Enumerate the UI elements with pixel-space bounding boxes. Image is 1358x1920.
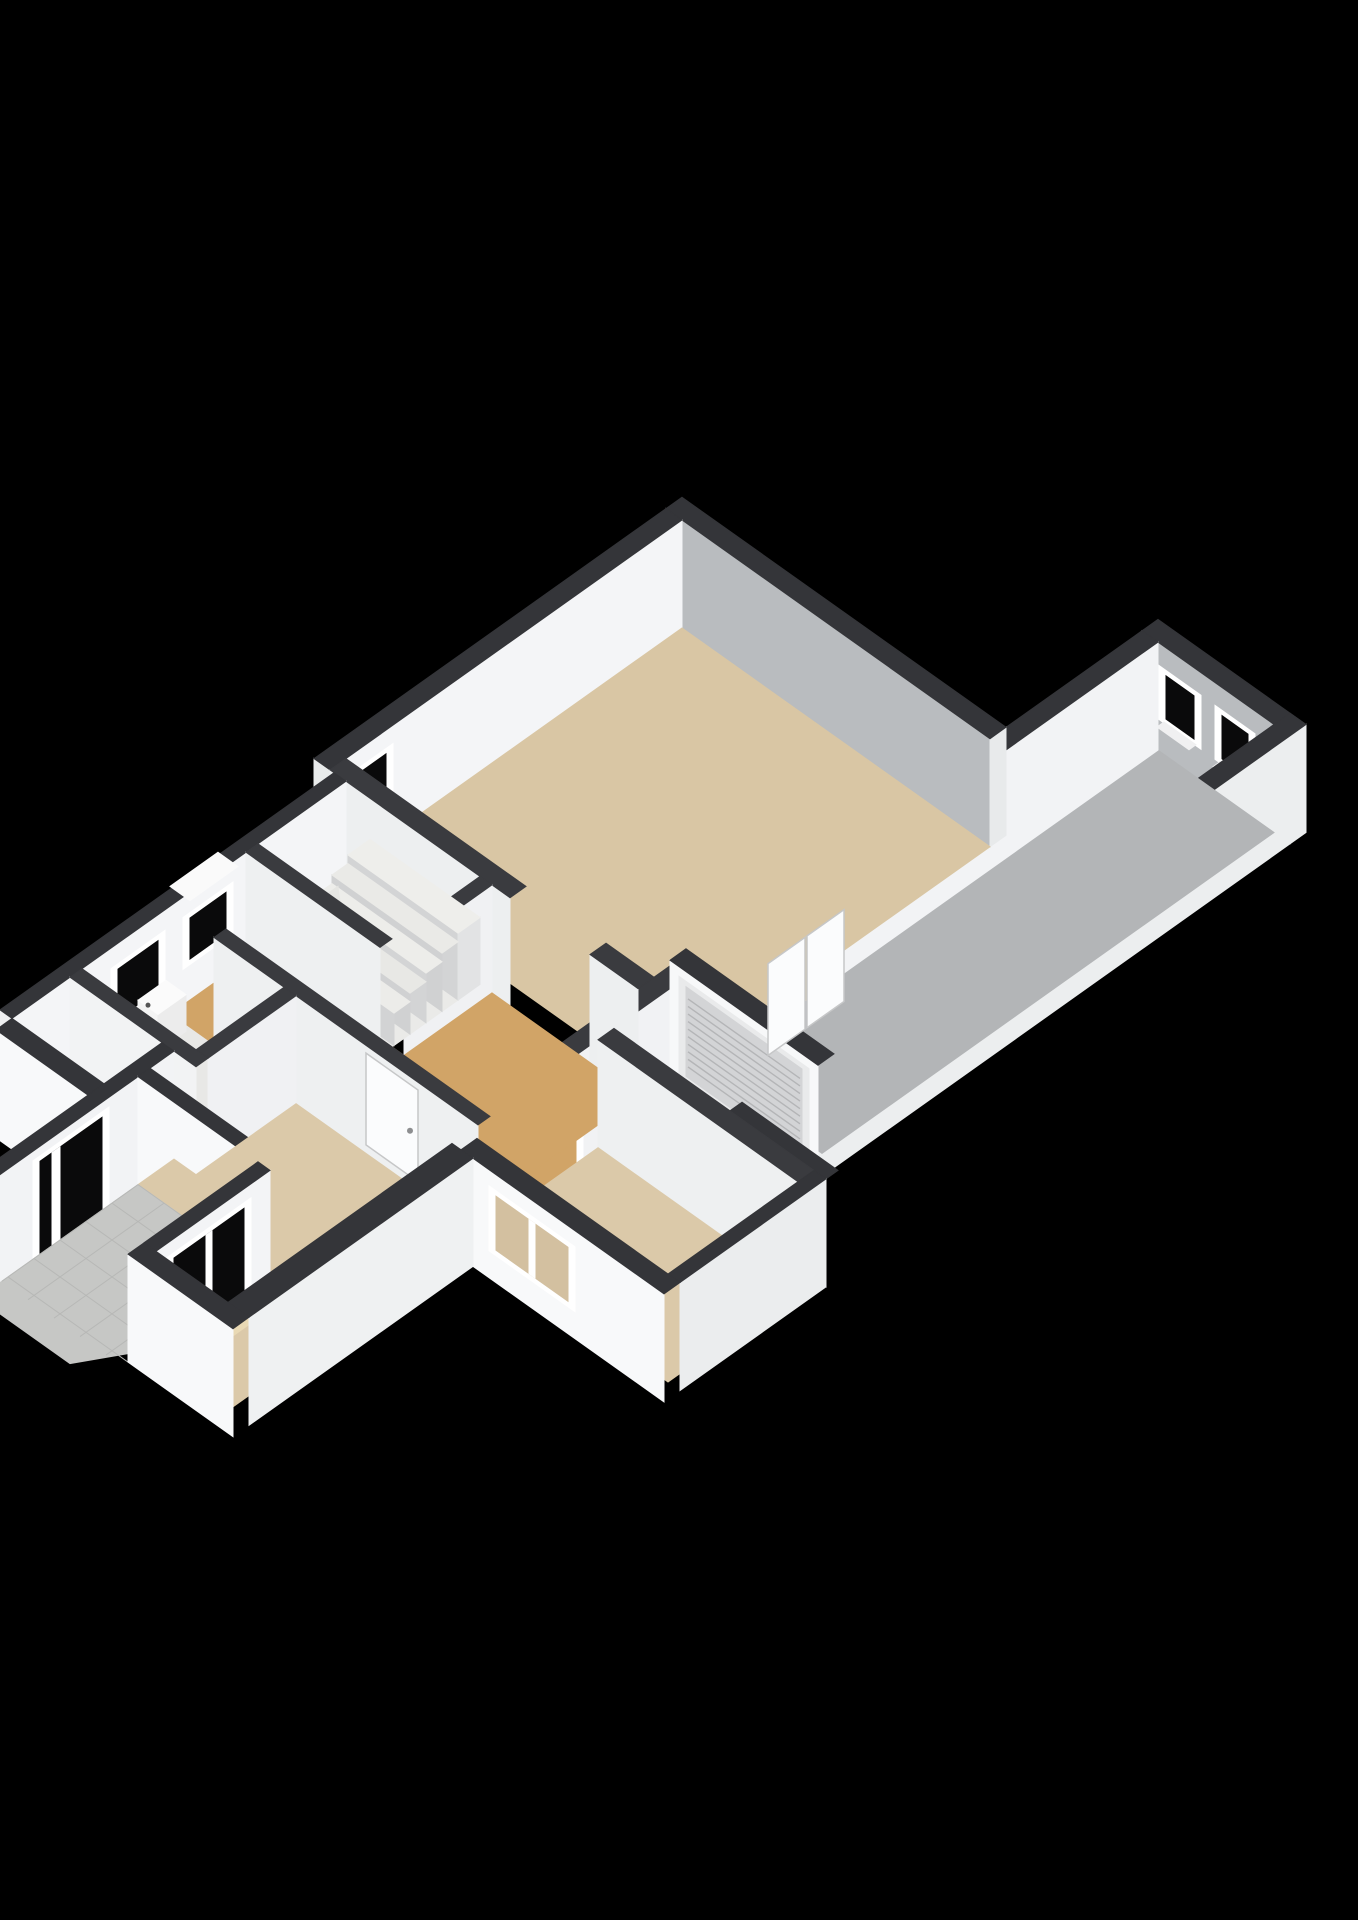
front-door-mullion <box>52 1147 60 1246</box>
toilet-tap <box>146 1003 151 1008</box>
front-right-window-mullion <box>529 1220 535 1278</box>
floorplan-3d-render <box>0 0 1358 1920</box>
hall-door-leaf-handle <box>407 1128 413 1134</box>
floorplan-svg <box>0 0 1358 1920</box>
living-ne-wall-face-se <box>990 727 1006 846</box>
